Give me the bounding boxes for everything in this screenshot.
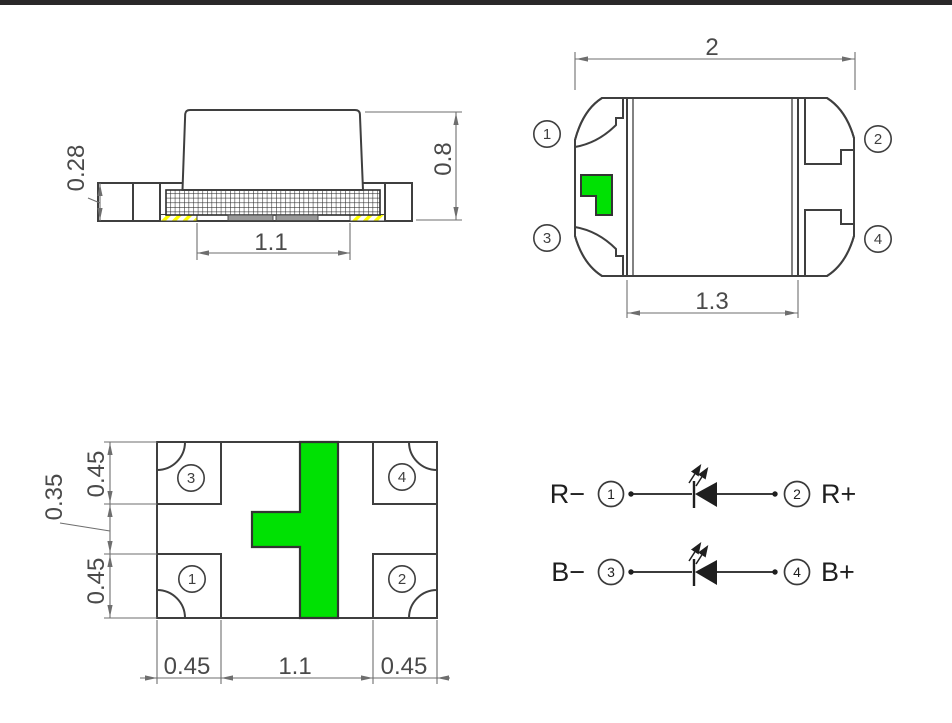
side-bottom-pad-left [228, 215, 273, 221]
light-arrow-icon [689, 544, 700, 561]
side-left-terminal [133, 183, 160, 221]
dim-text-bottom-right: 0.45 [381, 653, 428, 680]
led-triangle [695, 482, 717, 507]
arrow-up-icon [107, 505, 112, 517]
pin-number: 4 [874, 231, 882, 248]
dim-text-total-height: 0.8 [430, 142, 457, 175]
top-terminal-3 [575, 227, 623, 276]
pin-number: 2 [793, 486, 801, 502]
dim-text-bottom-left: 0.45 [164, 653, 211, 680]
side-right-terminal [385, 183, 412, 221]
arrow-up-icon [453, 113, 458, 125]
arrow-right-icon [145, 675, 157, 680]
side-view: 0.28 0.8 1.1 [63, 110, 462, 260]
node-dot [772, 491, 777, 496]
dim-text-side-top: 0.45 [83, 451, 110, 498]
pin-number: 3 [543, 230, 551, 247]
top-view: 1 2 3 4 2 1.3 [534, 34, 891, 318]
dim-text-lens-width: 1.3 [695, 288, 728, 315]
light-arrow-icon [696, 469, 707, 486]
dim-text-bottom-width: 1.1 [254, 229, 287, 256]
led-package-drawing: 0.28 0.8 1.1 1 2 3 4 [0, 0, 952, 723]
window-top-bar [0, 0, 952, 5]
arrow-left-icon [197, 250, 209, 255]
top-terminal-1 [575, 98, 623, 147]
pin-number: 2 [874, 131, 882, 148]
top-lens-bg [627, 98, 798, 276]
schematic-row-blue: B− 3 4 B+ [551, 544, 855, 587]
led-triangle [695, 560, 717, 585]
arrow-left-icon [437, 675, 449, 680]
terminal-label-positive: R+ [821, 479, 856, 509]
dim-text-side-gap: 0.35 [41, 474, 68, 521]
pin-number: 2 [398, 571, 406, 588]
side-lens-bg [183, 110, 364, 190]
pin-number: 3 [607, 564, 615, 580]
arrow-right-icon [361, 675, 373, 680]
dim-text-base-height: 0.28 [63, 145, 90, 192]
terminal-label-positive: B+ [821, 557, 855, 587]
dim-text-bottom-center: 1.1 [278, 653, 311, 680]
top-polarity-mark [581, 175, 612, 215]
node-dot [772, 569, 777, 574]
dim-text-side-bottom: 0.45 [83, 558, 110, 605]
arrow-down-icon [107, 605, 112, 617]
arrow-left-icon [221, 675, 233, 680]
terminal-label-negative: B− [551, 557, 585, 587]
top-terminal-2 [805, 98, 854, 164]
pin-number: 1 [543, 126, 551, 143]
pin-number: 3 [187, 470, 195, 487]
node-dot [628, 491, 633, 496]
side-bottom-pad-right [276, 215, 318, 221]
arrow-right-icon [842, 56, 854, 61]
arrow-left-icon [576, 56, 588, 61]
arrow-right-icon [338, 250, 350, 255]
drawing-sheet: 0.28 0.8 1.1 1 2 3 4 [0, 0, 952, 723]
arrow-down-icon [453, 207, 458, 219]
dim-text-total-width: 2 [705, 34, 718, 61]
arrow-left-icon [628, 310, 640, 315]
light-arrow-icon [696, 547, 707, 564]
pin-number: 4 [398, 469, 406, 486]
pin-number: 4 [793, 564, 801, 580]
terminal-label-negative: R− [550, 479, 585, 509]
node-dot [628, 569, 633, 574]
side-chip-strip [166, 190, 380, 215]
top-terminal-4 [805, 210, 854, 276]
light-arrow-icon [689, 466, 700, 483]
arrow-down-icon [107, 541, 112, 553]
pin-number: 1 [607, 486, 615, 502]
dim-leader-0-35 [60, 523, 110, 531]
bottom-view: 3 4 1 2 0.45 0.35 0.45 0.45 1.1 [41, 442, 450, 684]
pin-number: 1 [188, 571, 196, 588]
schematic-row-red: R− 1 2 R+ [550, 466, 857, 509]
arrow-right-icon [785, 310, 797, 315]
schematic: R− 1 2 R+ B− 3 [550, 466, 857, 587]
bottom-polarity-mark [252, 442, 338, 618]
